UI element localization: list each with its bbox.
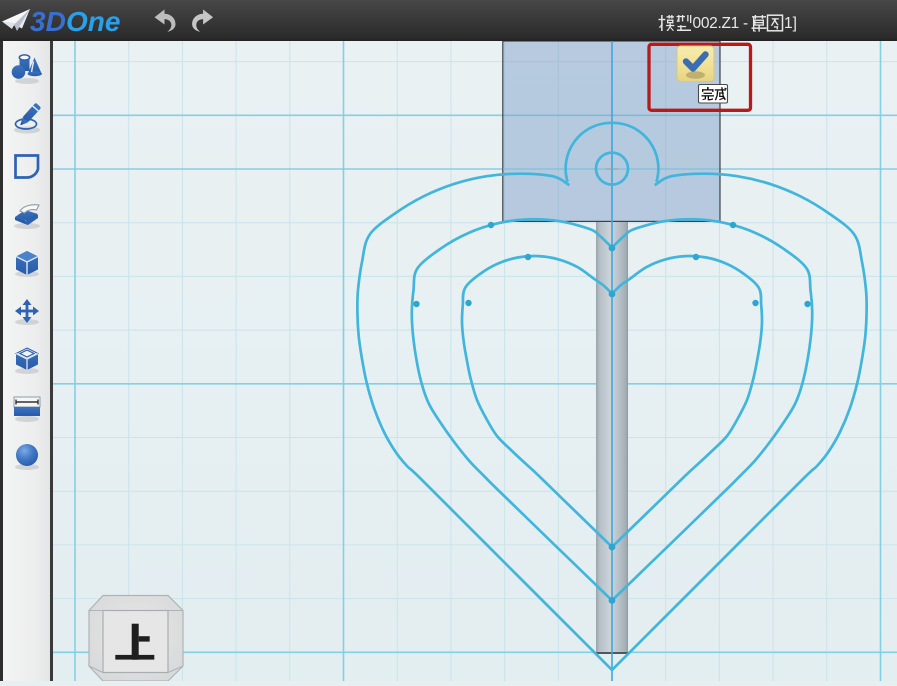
svg-text:3D: 3D xyxy=(30,6,66,37)
svg-text:002.Z1 - [: 002.Z1 - [ xyxy=(693,15,757,32)
svg-text:1]: 1] xyxy=(784,15,797,32)
svg-text:One: One xyxy=(66,6,120,37)
